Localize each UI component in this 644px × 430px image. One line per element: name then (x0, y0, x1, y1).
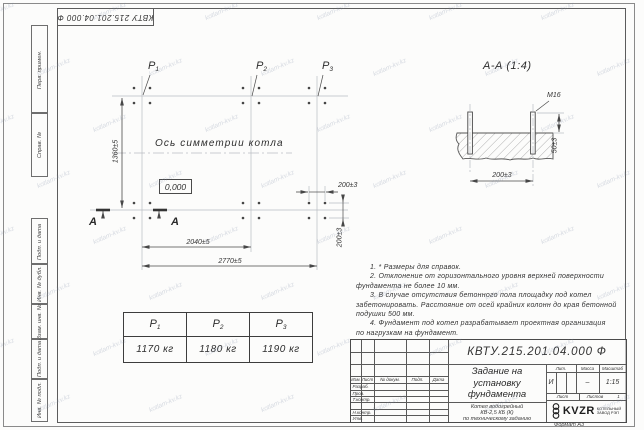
load-label-p3: P3 (322, 60, 333, 73)
product-line-3: по техническому заданию (463, 416, 531, 422)
role-razrab: Разраб. (351, 383, 376, 390)
header-base: P (213, 318, 220, 330)
note-line: забетонировать. Расстояние от осей крайн… (352, 301, 618, 310)
drawing-sheet: Перв. примен. Справ. № Подп. и дата Инв.… (0, 0, 644, 430)
role-tkontr: Т.контр. (351, 396, 376, 402)
load-label-sub: 3 (329, 66, 333, 73)
company-logo-cell: KVZR КОТЕЛЬНЫЙ ЗАВОД РЭП (546, 400, 626, 422)
dim-1360: 1360±5 (113, 132, 120, 172)
lit-value: И (546, 372, 556, 393)
mass-label: Масса (576, 364, 599, 372)
scale-label: Масштаб (599, 364, 626, 372)
sheet-label: Лист (546, 393, 579, 400)
col-data: Дата (429, 376, 448, 383)
frame-label: Инв. № подл. (37, 382, 43, 418)
dim-200-section: 200±3 (486, 172, 518, 179)
note-line: 2. Отклонение от горизонтального уровня … (352, 272, 618, 281)
product-line-1: Котел водогрейный (463, 404, 531, 410)
load-table-header-p3: P3 (250, 313, 313, 337)
load-table-header-p1: P1 (124, 313, 187, 337)
title-line-3: фундамента (468, 389, 526, 401)
dim-50-protrusion: 50±3 (552, 129, 559, 163)
logo-caption-line-2: ЗАВОД РЭП (597, 411, 621, 415)
kvzr-logo-caption: КОТЕЛЬНЫЙ ЗАВОД РЭП (597, 407, 621, 416)
dim-2040: 2040±5 (168, 239, 228, 246)
kvzr-logo-text: KVZR (563, 405, 595, 417)
drawing-title: Задание на установку фундамента (448, 365, 546, 402)
elevation-value: 0,000 (165, 182, 186, 192)
title-line-2: установку (468, 378, 526, 390)
lit-label: Лит. (546, 364, 576, 372)
col-list: Лист (361, 376, 374, 383)
frame-label: Справ. № (37, 131, 43, 157)
frame-label: Подп. и дата (37, 223, 43, 259)
scale-value: 1:15 (599, 372, 626, 393)
stamp-text: КВТУ 215.201.04.000 Ф (57, 13, 153, 22)
elevation-mark: 0,000 (159, 179, 192, 194)
frame-box-inv-podl: Инв. № подл. (31, 378, 48, 422)
frame-box-perv-primen: Перв. примен. (31, 25, 48, 114)
load-value-p1: 1170 кг (124, 337, 187, 363)
dim-200-horizontal: 200±3 (338, 182, 357, 189)
frame-label: Подп. и дата (37, 341, 43, 377)
header-sub: 2 (220, 324, 224, 331)
frame-box-podp-data-2: Подп. и дата (31, 338, 48, 380)
header-sub: 1 (157, 324, 161, 331)
note-line: 3. В случае отсутствия бетонного пола пл… (352, 291, 618, 300)
section-view-title: А-А (1:4) (483, 60, 532, 72)
col-podp: Подп. (406, 376, 429, 383)
load-table: P1 P2 P3 1170 кг 1180 кг 1190 кг (123, 312, 313, 363)
section-letter-right: А (171, 216, 179, 228)
col-dokum: № докум. (374, 376, 406, 383)
load-table-header-p2: P2 (187, 313, 250, 337)
sheets-label: Листов (579, 393, 611, 400)
mass-value: – (576, 372, 599, 393)
col-izm: Изм. (351, 376, 361, 383)
bolt-thread-label-m16: М16 (547, 92, 561, 99)
boiler-symmetry-axis-label: Ось симметрии котла (155, 138, 284, 149)
header-base: P (150, 318, 157, 330)
load-label-p1: P1 (148, 60, 159, 73)
title-line-1: Задание на (468, 366, 526, 378)
frame-box-vzam-inv: Взам. инв. № (31, 303, 48, 340)
section-letter-left: А (89, 216, 97, 228)
frame-label: Взам. инв. № (37, 304, 43, 340)
doc-number: КВТУ.215.201.04.000 Ф (448, 341, 626, 363)
load-label-sub: 2 (263, 66, 267, 73)
frame-box-sprav: Справ. № (31, 112, 48, 177)
header-sub: 3 (283, 324, 287, 331)
rotated-designation-stamp: КВТУ 215.201.04.000 Ф (57, 8, 154, 26)
role-utv: Утв. (351, 415, 376, 422)
frame-box-inv-dubl: Инв. № дубл. (31, 263, 48, 305)
note-line: подушки 500 мм. (352, 310, 618, 319)
load-label-p2: P2 (256, 60, 267, 73)
sheets-value: 1 (611, 393, 626, 400)
title-block: КВТУ.215.201.04.000 Ф Изм. Лист № докум.… (350, 339, 627, 423)
note-line: фундамента не более 10 мм. (352, 282, 618, 291)
product-name: Котел водогрейный КВ-2,5 КБ (К) по техни… (448, 403, 546, 422)
dim-2770: 2770±5 (200, 258, 260, 265)
notes-block: 1. * Размеры для справок. 2. Отклонение … (352, 263, 618, 338)
format-label: Формат А3 (554, 422, 584, 428)
dim-200-vertical: 200±3 (337, 220, 344, 256)
note-line: 4. Фундамент под котел разрабатывает про… (352, 319, 618, 328)
frame-label: Перв. примен. (37, 50, 43, 89)
frame-label: Инв. № дубл. (37, 266, 43, 302)
kvzr-coil-icon (551, 403, 561, 419)
load-value-p2: 1180 кг (187, 337, 250, 363)
load-value-p3: 1190 кг (250, 337, 313, 363)
frame-box-podp-data-1: Подп. и дата (31, 218, 48, 265)
note-line: 1. * Размеры для справок. (352, 263, 618, 272)
load-label-sub: 1 (155, 66, 159, 73)
header-base: P (276, 318, 283, 330)
note-line: по нагрузкам на фундамент. (352, 329, 618, 338)
